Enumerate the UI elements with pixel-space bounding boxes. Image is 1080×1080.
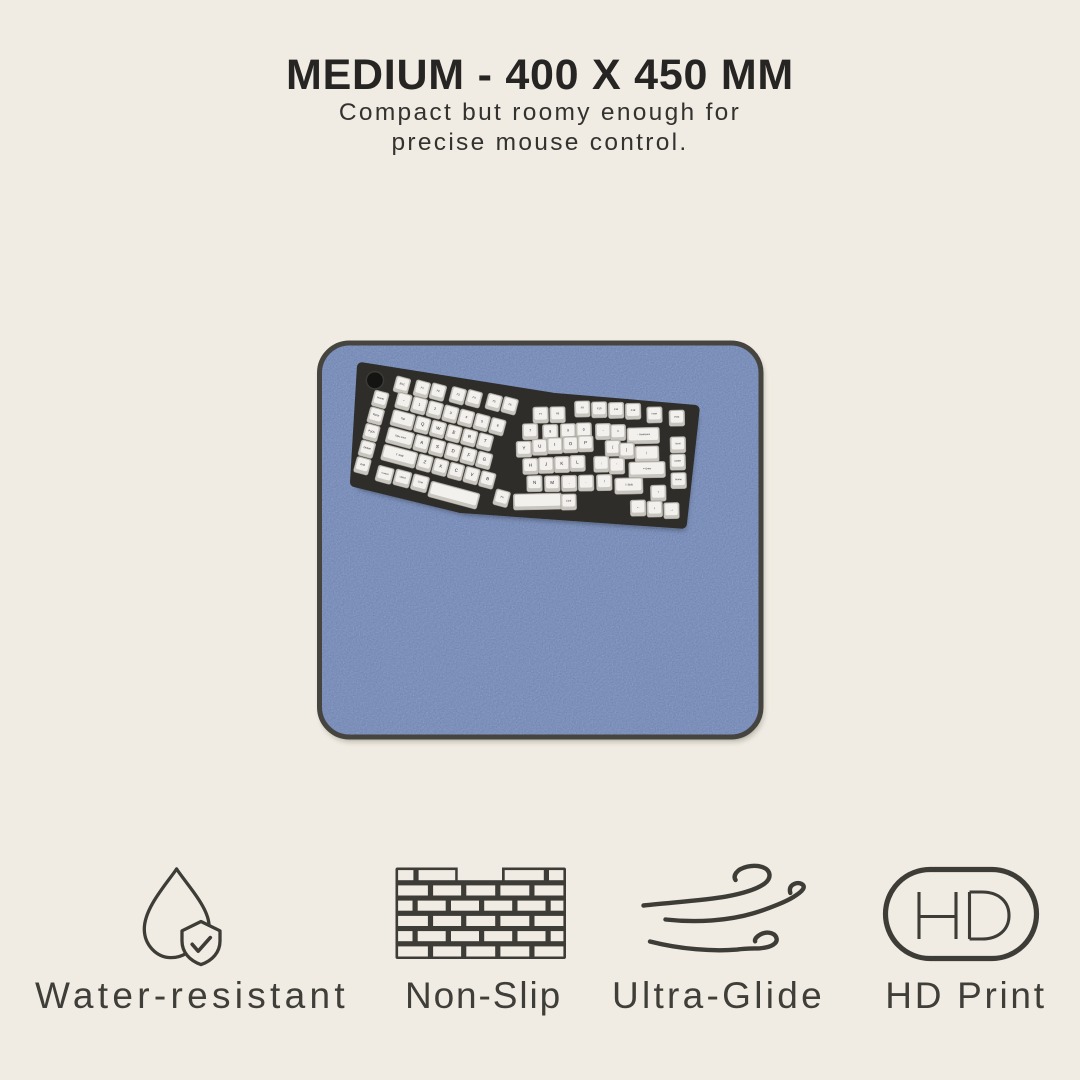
svg-text:,: , xyxy=(569,480,570,484)
svg-text:I: I xyxy=(554,442,555,447)
svg-text:F12: F12 xyxy=(631,408,636,412)
svg-text:N: N xyxy=(533,480,536,485)
svg-text:=: = xyxy=(617,429,619,433)
svg-text:↓: ↓ xyxy=(654,506,656,510)
svg-text:F11: F11 xyxy=(614,407,619,411)
svg-text:↩ Enter: ↩ Enter xyxy=(643,467,652,470)
svg-text:Cmd: Cmd xyxy=(566,499,572,502)
svg-text:↑: ↑ xyxy=(657,490,659,494)
svg-text:-: - xyxy=(603,429,604,433)
svg-text:← Backspace: ← Backspace xyxy=(636,434,650,436)
svg-text:;: ; xyxy=(601,461,602,465)
svg-text:8: 8 xyxy=(549,429,551,433)
svg-text:]: ] xyxy=(626,448,627,452)
svg-text:M: M xyxy=(550,480,554,485)
svg-text:Print: Print xyxy=(674,416,679,419)
svg-text:U: U xyxy=(538,444,541,449)
svg-text:F10: F10 xyxy=(597,406,602,410)
svg-text:→: → xyxy=(670,508,674,512)
svg-text:Insert: Insert xyxy=(652,412,658,415)
svg-text:7: 7 xyxy=(529,429,531,433)
svg-text:9: 9 xyxy=(567,428,569,432)
svg-text:⇧ Shift: ⇧ Shift xyxy=(625,483,633,487)
svg-text:.: . xyxy=(585,480,586,484)
svg-text:/: / xyxy=(604,479,605,483)
svg-text:J: J xyxy=(545,462,547,467)
svg-text:Y: Y xyxy=(522,445,525,450)
svg-text:Scroll: Scroll xyxy=(675,442,681,445)
svg-text:K: K xyxy=(560,461,563,466)
svg-text:Home: Home xyxy=(675,478,682,481)
svg-text:H: H xyxy=(529,463,532,468)
svg-text:←: ← xyxy=(636,505,640,509)
svg-text:0: 0 xyxy=(583,428,585,432)
svg-text:Delete: Delete xyxy=(674,459,681,462)
svg-text:[: [ xyxy=(612,445,613,449)
svg-text:P: P xyxy=(584,440,587,445)
